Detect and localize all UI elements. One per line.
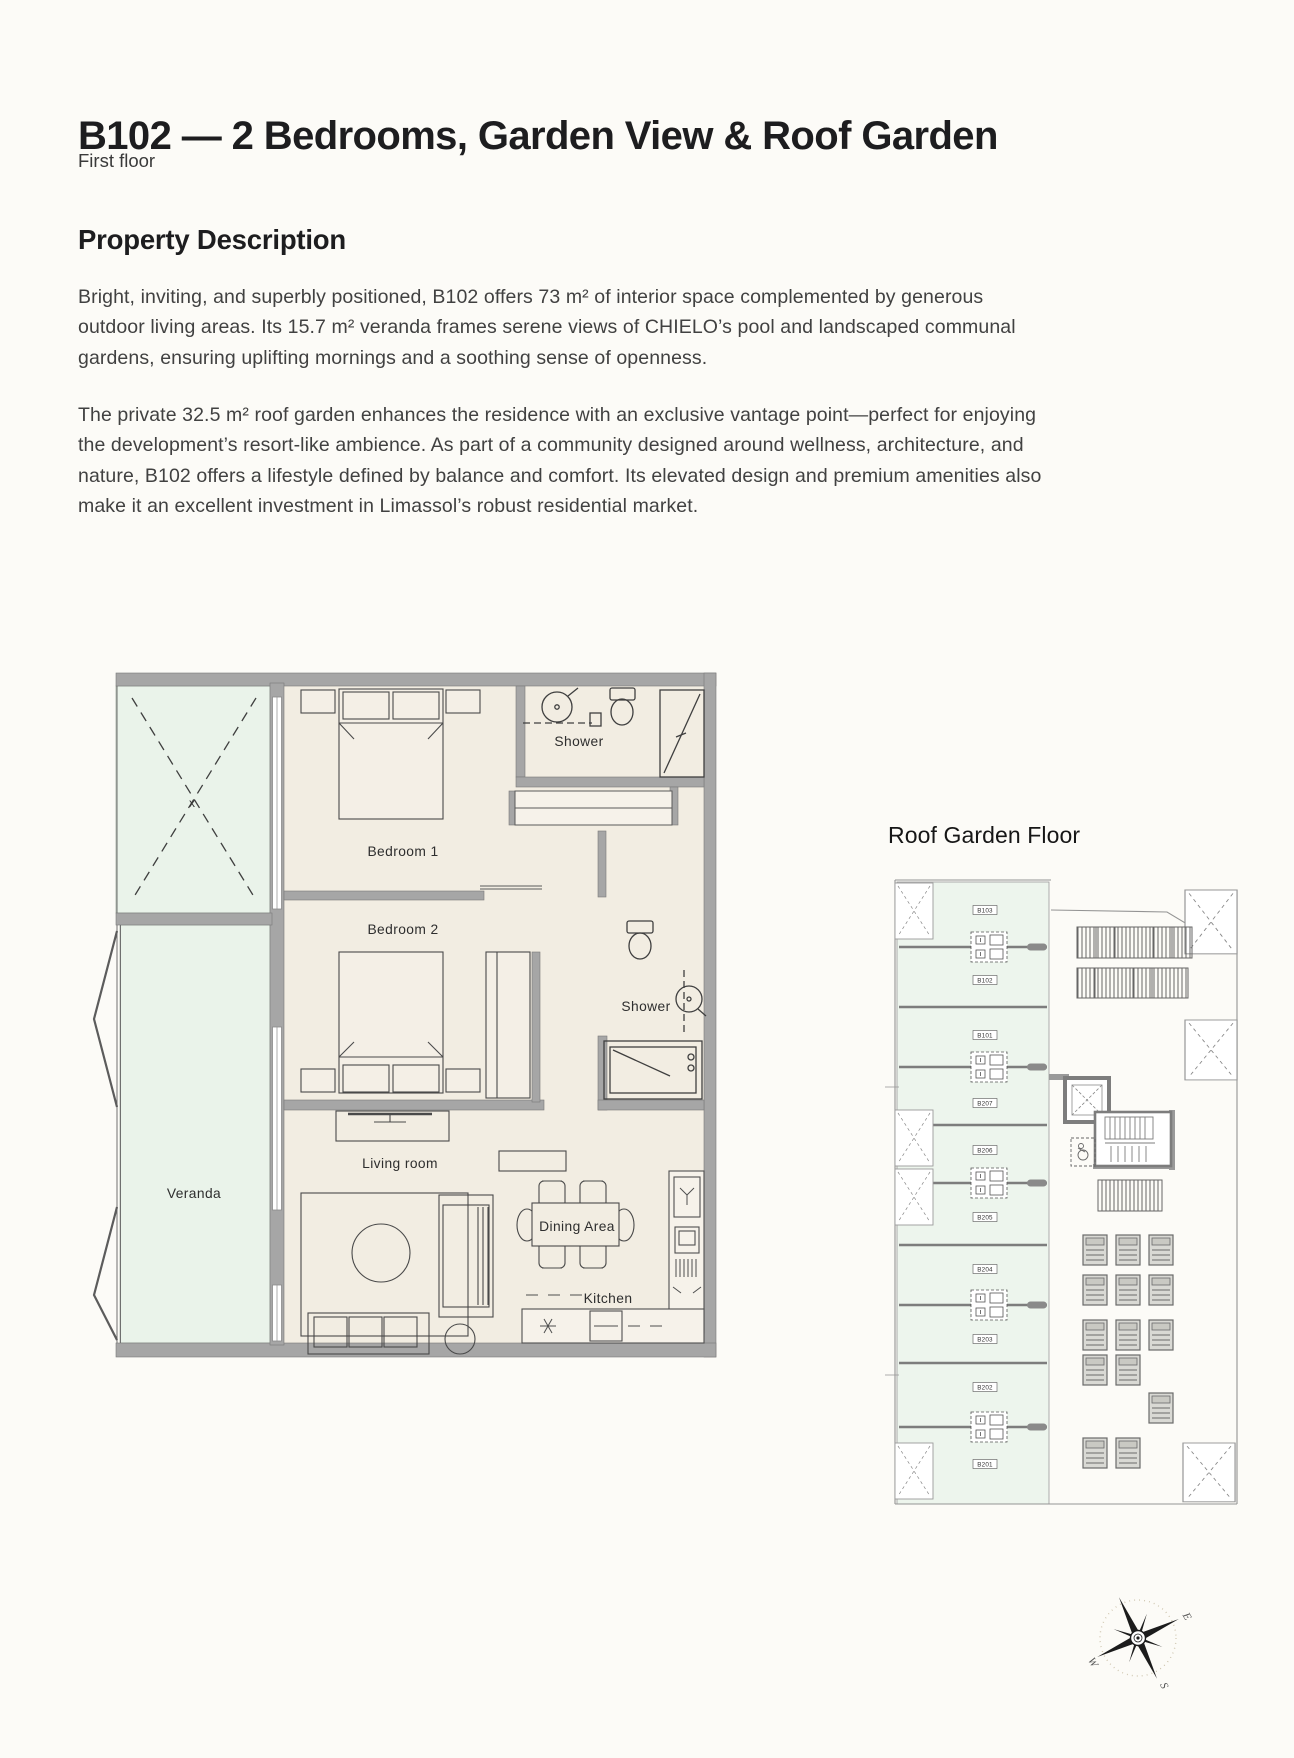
unit-tag-label: B205: [977, 1215, 993, 1222]
label-bedroom2: Bedroom 2: [367, 922, 438, 937]
folding-door-icon: [94, 931, 117, 1340]
sunbed-icon: [1083, 1275, 1107, 1305]
skylight-icon: [895, 1169, 933, 1225]
roofplan-title: Roof Garden Floor: [888, 822, 1080, 849]
label-kitchen: Kitchen: [584, 1291, 633, 1306]
sunbed-icon: [1116, 1235, 1140, 1265]
unit-tag-label: B101: [977, 1033, 993, 1040]
sunbed-icon: [1083, 1438, 1107, 1468]
ac-unit-icon: [971, 932, 1007, 962]
sunbed-icon: [1083, 1235, 1107, 1265]
ac-unit-icon: [971, 1412, 1007, 1442]
unit-tag-label: B206: [977, 1148, 993, 1155]
sunbed-icon: [1149, 1393, 1173, 1423]
sunbed-icon: [1149, 1320, 1173, 1350]
accessible-wc-icon: [1071, 1138, 1095, 1166]
property-sheet: B102 — 2 Bedrooms, Garden View & Roof Ga…: [0, 0, 1294, 1758]
unit-tag-label: B207: [977, 1101, 993, 1108]
skylight-icon: [895, 1110, 933, 1166]
unit-tag-label: B202: [977, 1385, 993, 1392]
ac-unit-icon: [971, 1168, 1007, 1198]
unit-tag-label: B103: [977, 908, 993, 915]
veranda-area: [120, 925, 270, 1343]
sunbed-icon: [1149, 1235, 1173, 1265]
unit-tag-label: B203: [977, 1337, 993, 1344]
compass-south-label: S: [1157, 1681, 1170, 1692]
ac-unit-icon: [971, 1290, 1007, 1320]
roof-floorplan: B103 B102 B101 B207 B206 B205 B204 B203 …: [885, 878, 1245, 1518]
sunbed-icon: [1083, 1320, 1107, 1350]
sunbed-icon: [1116, 1438, 1140, 1468]
label-living-room: Living room: [362, 1156, 438, 1171]
sunbed-icon: [1083, 1355, 1107, 1385]
compass-west-label: W: [1085, 1656, 1100, 1671]
staircase-icon: [1095, 1112, 1171, 1166]
sunbed-icon: [1149, 1275, 1173, 1305]
sunbed-icon: [1116, 1275, 1140, 1305]
sunbed-icon: [1116, 1355, 1140, 1385]
main-floorplan: x: [80, 595, 720, 1360]
page-subtitle: First floor: [78, 150, 155, 172]
skylight-icon: [1185, 890, 1237, 954]
unit-tag-label: B102: [977, 978, 993, 985]
description-paragraph-1: Bright, inviting, and superbly positione…: [78, 282, 1053, 374]
unit-tag-label: B201: [977, 1462, 993, 1469]
skylight-icon: [895, 883, 933, 939]
label-veranda: Veranda: [167, 1186, 221, 1201]
label-dining-area: Dining Area: [539, 1219, 615, 1234]
description-paragraph-2: The private 32.5 m² roof garden enhances…: [78, 400, 1053, 522]
ac-unit-icon: [971, 1052, 1007, 1082]
garden-x-mark: x: [189, 796, 195, 810]
compass-east-label: E: [1179, 1610, 1193, 1623]
skylight-icon: [1183, 1443, 1235, 1502]
compass-rose: E W S: [1078, 1578, 1198, 1698]
label-shower-top: Shower: [554, 734, 603, 749]
label-shower-mid: Shower: [621, 999, 670, 1014]
section-heading: Property Description: [78, 224, 346, 256]
sunbed-icon: [1116, 1320, 1140, 1350]
skylight-icon: [895, 1443, 933, 1499]
skylight-icon: [1185, 1020, 1237, 1080]
label-bedroom1: Bedroom 1: [367, 844, 438, 859]
unit-tag-label: B204: [977, 1267, 993, 1274]
page-title: B102 — 2 Bedrooms, Garden View & Roof Ga…: [78, 111, 1178, 161]
compass-hub-dot: [1136, 1636, 1139, 1639]
